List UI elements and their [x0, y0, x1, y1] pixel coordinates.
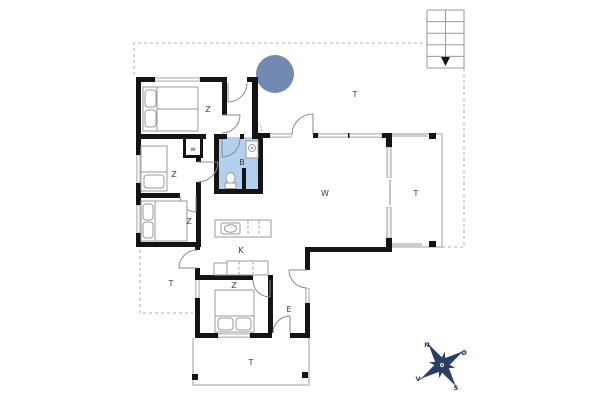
floor-plan-svg: Z Z Z Z w B K W E T T T T N Ø S V	[0, 0, 600, 400]
terrace-west-door	[179, 250, 197, 268]
compass-rose: N Ø S V	[405, 328, 480, 400]
compass-letter-west: V	[415, 375, 420, 383]
stairs-icon	[427, 10, 464, 68]
room-label-terrace-east: T	[413, 189, 419, 198]
bed-bedroom2	[141, 146, 167, 191]
room-label-bedroom-top: Z	[205, 105, 211, 114]
bedroom4-door	[253, 280, 270, 297]
front-door	[273, 316, 290, 333]
bed-bedroom3	[141, 201, 187, 241]
compass-letter-south: S	[454, 384, 459, 392]
floor-plan-page: Z Z Z Z w B K W E T T T T N Ø S V	[0, 0, 600, 400]
room-label-kitchen: K	[238, 246, 244, 255]
stairs-down-arrow	[441, 57, 450, 66]
room-label-terrace-west: T	[168, 279, 174, 288]
kitchen-island	[215, 220, 271, 237]
bedroom1-door	[222, 115, 240, 133]
bed-bedroom4	[215, 290, 254, 332]
room-label-terrace-south: T	[248, 358, 254, 367]
room-label-living-room: W	[321, 189, 329, 198]
kitchen-counter	[214, 261, 268, 275]
room-label-bedroom-bottom: Z	[231, 281, 237, 290]
room-label-terrace-north: T	[352, 90, 358, 99]
compass-letter-north: N	[424, 341, 429, 349]
room-label-entry: E	[286, 305, 291, 314]
hall-exterior-door	[228, 83, 247, 102]
room-labels: Z Z Z Z w B K W E T T T T	[168, 90, 419, 367]
living-room-north-door	[292, 114, 313, 135]
toilet	[226, 173, 235, 184]
entry-side-door	[289, 270, 307, 288]
bed-bedroom1	[143, 87, 198, 131]
plot-boundary-dashed	[134, 43, 464, 313]
compass-letter-east: Ø	[461, 349, 467, 357]
bathroom-sink	[246, 141, 258, 158]
room-label-bedroom-middle: Z	[171, 170, 177, 179]
room-label-bedroom-lower: Z	[186, 217, 192, 226]
room-label-wardrobe: w	[190, 145, 196, 153]
hot-tub-circle	[256, 55, 294, 93]
room-label-bathroom: B	[239, 158, 245, 167]
